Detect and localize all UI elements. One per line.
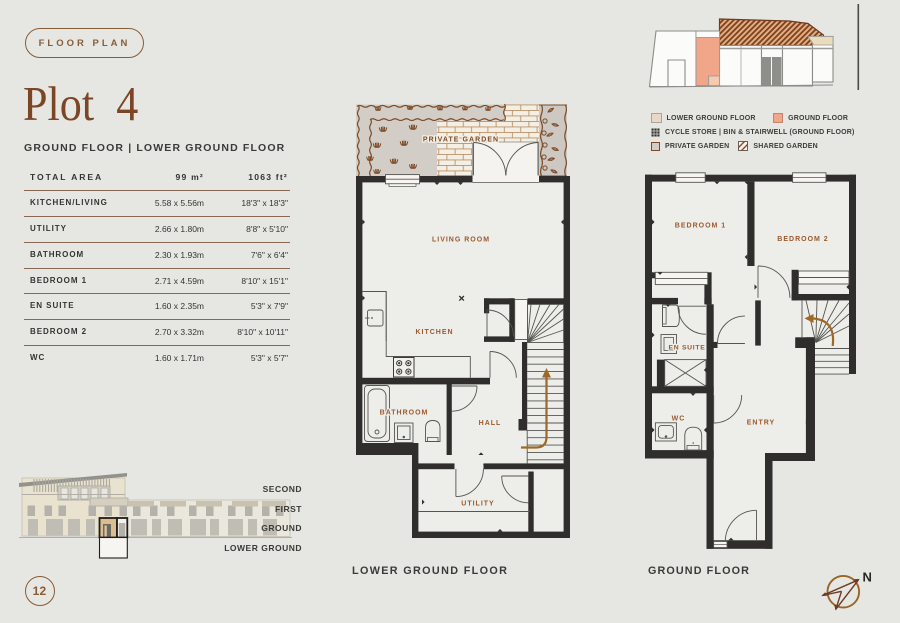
svg-text:KITCHEN: KITCHEN <box>415 329 453 336</box>
svg-text:UTILITY: UTILITY <box>461 501 494 508</box>
svg-text:EN SUITE: EN SUITE <box>669 345 706 352</box>
svg-text:HALL: HALL <box>479 420 502 427</box>
svg-text:BATHROOM: BATHROOM <box>380 410 429 417</box>
svg-text:BEDROOM 1: BEDROOM 1 <box>675 223 726 230</box>
svg-text:BEDROOM 2: BEDROOM 2 <box>777 236 828 243</box>
svg-text:ENTRY: ENTRY <box>747 420 775 427</box>
svg-text:N: N <box>863 570 872 585</box>
svg-text:PRIVATE GARDEN: PRIVATE GARDEN <box>423 137 499 144</box>
svg-text:WC: WC <box>672 416 686 423</box>
svg-text:LIVING ROOM: LIVING ROOM <box>432 237 490 244</box>
